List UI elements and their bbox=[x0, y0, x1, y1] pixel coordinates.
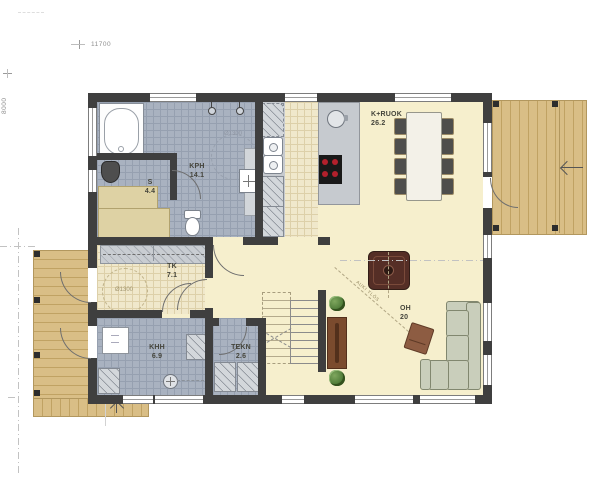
interior-wall bbox=[213, 318, 219, 326]
interior-wall bbox=[190, 310, 205, 318]
floor-drain-icon bbox=[163, 374, 178, 389]
island-sink bbox=[327, 110, 345, 128]
sofa-armrest bbox=[420, 359, 431, 390]
dryer bbox=[186, 334, 206, 360]
sofa-cushion bbox=[446, 335, 469, 362]
deck-post bbox=[34, 390, 40, 396]
window bbox=[282, 395, 304, 404]
interior-wall bbox=[97, 237, 213, 245]
interior-wall bbox=[258, 318, 266, 395]
window bbox=[483, 235, 492, 258]
toilet-bowl bbox=[185, 217, 200, 236]
interior-wall bbox=[205, 245, 213, 278]
stairs-upper-flight bbox=[262, 292, 291, 364]
window bbox=[483, 355, 492, 385]
reference-dashes bbox=[18, 12, 44, 13]
window bbox=[88, 108, 97, 156]
dishwasher bbox=[262, 176, 284, 207]
ventilation-unit bbox=[237, 362, 259, 392]
dining-chair bbox=[440, 118, 454, 135]
window bbox=[88, 170, 97, 192]
room-label-kruok: K+RUOK26.2 bbox=[371, 111, 415, 129]
reference-line bbox=[105, 404, 106, 426]
dimension-line bbox=[71, 44, 85, 45]
room-label-sauna: S4.4 bbox=[138, 179, 162, 197]
floor-plan: Ø1300 Ø1300 bbox=[0, 0, 600, 480]
plant bbox=[329, 296, 345, 311]
chimney-axis-line bbox=[340, 260, 483, 261]
interior-wall bbox=[97, 310, 162, 318]
turning-circle-label: Ø1300 bbox=[100, 287, 148, 293]
open-above-line bbox=[388, 252, 389, 298]
deck-post bbox=[34, 352, 40, 358]
washing-machine bbox=[98, 368, 120, 394]
eave-line bbox=[8, 397, 20, 398]
deck-post bbox=[493, 101, 499, 107]
island-sink-faucet bbox=[344, 115, 348, 121]
dimension-line bbox=[7, 69, 8, 78]
sofa-cushion bbox=[446, 310, 469, 337]
window bbox=[285, 93, 317, 102]
window bbox=[150, 93, 196, 102]
closet bbox=[100, 245, 209, 264]
dimension-left: 8000 bbox=[1, 80, 13, 114]
fireplace bbox=[368, 251, 410, 290]
water-heater bbox=[214, 362, 236, 392]
interior-wall bbox=[243, 237, 278, 245]
room-label-oh: OH20 bbox=[400, 305, 426, 323]
bathtub bbox=[99, 103, 144, 160]
kitchen-sink bbox=[263, 155, 283, 174]
dining-chair bbox=[440, 158, 454, 175]
sauna-heater bbox=[101, 161, 120, 183]
dining-chair bbox=[440, 138, 454, 155]
deck-post bbox=[493, 225, 499, 231]
deck-post bbox=[34, 251, 40, 257]
stairs-lower-flight bbox=[290, 300, 319, 364]
sauna-wall bbox=[97, 153, 177, 160]
stove bbox=[319, 155, 342, 184]
window bbox=[483, 303, 492, 341]
pantry-cabinet bbox=[262, 103, 284, 137]
deck-post bbox=[552, 101, 558, 107]
deck-post bbox=[34, 297, 40, 303]
interior-wall bbox=[255, 102, 263, 237]
bathtub-drain bbox=[118, 146, 124, 152]
window bbox=[123, 395, 153, 404]
console-table bbox=[327, 317, 347, 369]
window bbox=[395, 93, 451, 102]
room-label-tekn: TEKN2.6 bbox=[225, 344, 257, 362]
kitchen-walkway-floor bbox=[283, 102, 318, 237]
window bbox=[155, 395, 203, 404]
dimension-top: 11700 bbox=[91, 41, 111, 48]
oven bbox=[262, 206, 284, 237]
turning-circle-label: Ø1300 bbox=[209, 131, 257, 137]
deck-post bbox=[552, 225, 558, 231]
room-label-tk: TK7.1 bbox=[158, 263, 186, 281]
kitchen-sink bbox=[263, 137, 283, 156]
room-label-kph: KPH14.1 bbox=[182, 163, 212, 181]
sauna-bench bbox=[98, 208, 170, 238]
interior-wall bbox=[318, 237, 330, 245]
window bbox=[355, 395, 413, 404]
utility-table bbox=[102, 327, 129, 354]
window bbox=[420, 395, 475, 404]
stair-wall bbox=[318, 290, 326, 372]
window bbox=[483, 123, 492, 172]
sofa-chaise bbox=[428, 360, 449, 390]
sofa-cushion bbox=[446, 360, 469, 390]
eave-line bbox=[0, 246, 36, 247]
eave-line bbox=[18, 228, 19, 475]
dining-chair bbox=[440, 178, 454, 195]
room-label-khh: KHH6.9 bbox=[141, 344, 173, 362]
drain-line bbox=[177, 380, 204, 381]
plant bbox=[329, 370, 345, 386]
interior-wall bbox=[205, 310, 213, 395]
